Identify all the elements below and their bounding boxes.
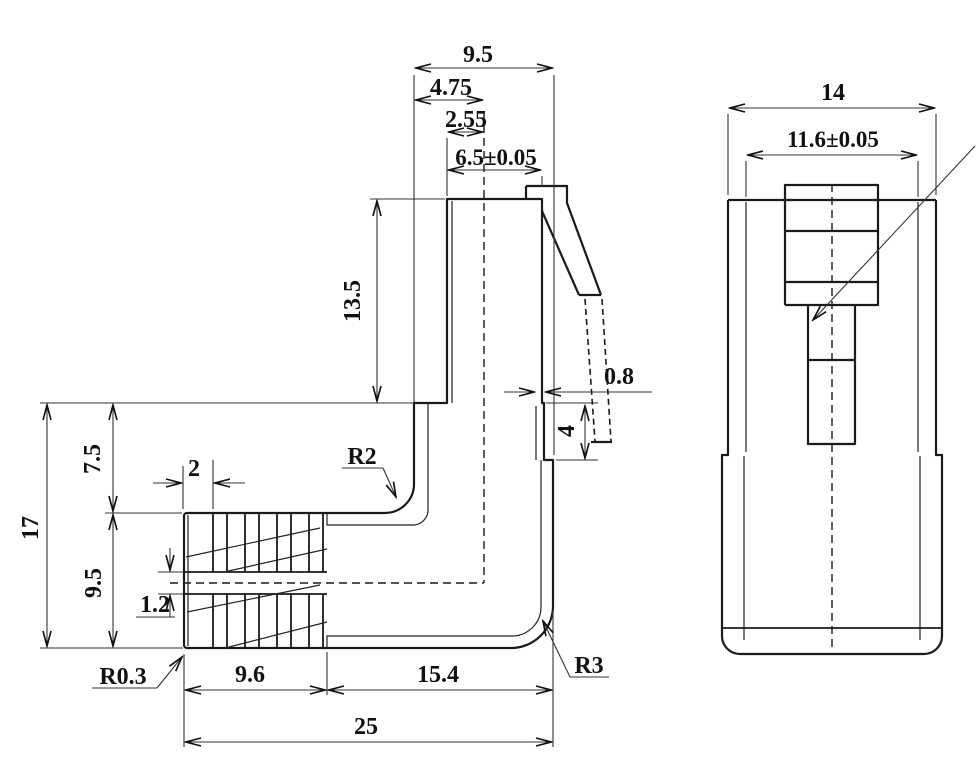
dim-label-plug-body-width: 11.6±0.05 (787, 127, 879, 152)
dim-label-boot-length: 9.6 (235, 662, 265, 688)
dim-label-half-width: 4.75 (430, 75, 472, 101)
latch-outline (526, 186, 612, 442)
dim-label-upper-height: 7.5 (80, 444, 106, 474)
r3-leader (543, 621, 570, 677)
dim-label-rib-pitch: 2 (188, 456, 200, 482)
side-view: 9.5 4.75 2.55 6.5±0.05 13.5 0.8 4 17 7.5… (18, 42, 652, 747)
r2-leader (383, 468, 396, 497)
technical-drawing-page: 9.5 4.75 2.55 6.5±0.05 13.5 0.8 4 17 7.5… (0, 0, 976, 760)
dim-label-latch-recess: 4 (554, 425, 580, 437)
dim-label-boot-height: 9.5 (81, 568, 107, 598)
dim-label-contact-offset: 2.55 (445, 107, 487, 133)
dim-label-tip-width: 6.5±0.05 (455, 145, 537, 170)
rib-taper-lines (186, 528, 327, 648)
dim-label-body-length: 15.4 (417, 662, 459, 688)
dim-label-rib-web: 1.2 (140, 592, 170, 618)
side-leaders (92, 468, 609, 688)
dim-label-wall-thickness: 0.8 (604, 364, 634, 390)
latch-callout-leader (813, 146, 975, 320)
dim-label-overall-height: 17 (18, 516, 44, 540)
side-extension-lines (40, 75, 598, 747)
dim-label-plug-width: 9.5 (463, 42, 493, 68)
body-outline (184, 199, 553, 648)
radius-label-outer: R3 (574, 653, 603, 679)
end-view: 14 11.6±0.05 (722, 80, 975, 654)
dim-label-overall-length: 25 (354, 714, 378, 740)
connector-drawing: 9.5 4.75 2.55 6.5±0.05 13.5 0.8 4 17 7.5… (0, 0, 976, 760)
dim-label-overall-width: 14 (821, 80, 845, 106)
r0-3-leader (157, 657, 182, 688)
radius-label-inner: R2 (347, 444, 376, 470)
inner-wall-lines (188, 201, 541, 648)
dim-label-plug-height: 13.5 (340, 280, 366, 322)
side-dimension-lines (47, 68, 652, 742)
radius-label-edge: R0.3 (99, 664, 146, 690)
